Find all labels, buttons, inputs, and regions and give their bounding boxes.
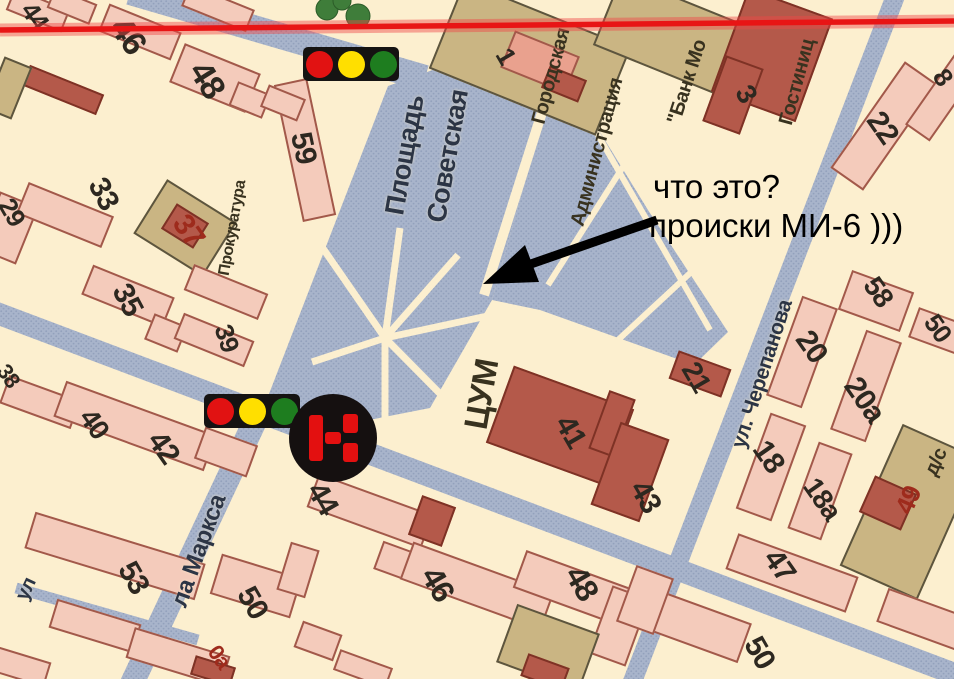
map-canvas: 4446485929333735393840424453504648414321… [0,0,954,679]
annotation-line-1: что это? [653,170,780,203]
annotation-line-2: происки МИ-6 ))) [649,209,903,242]
